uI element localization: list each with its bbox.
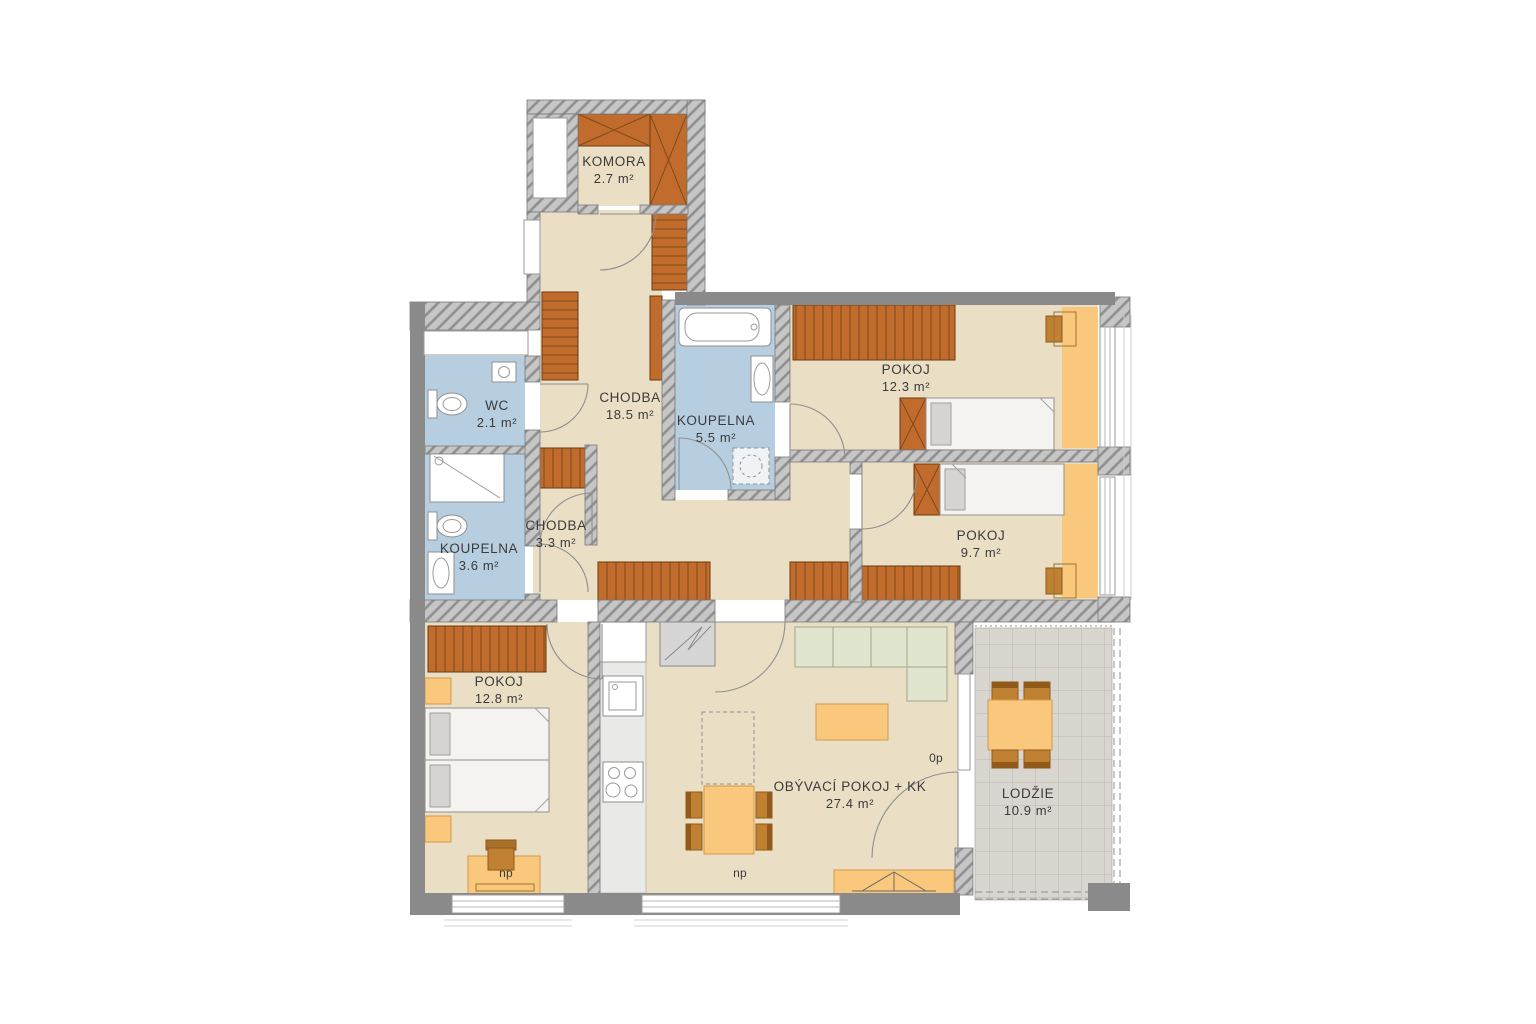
wall: [1098, 597, 1130, 622]
label-pokoj-b: POKOJ: [957, 528, 1006, 543]
label-komora: KOMORA: [582, 154, 646, 169]
wall: [525, 356, 540, 382]
kitchen-counter-run: [600, 622, 646, 893]
wardrobe-shelves: [542, 292, 578, 380]
pillow: [430, 713, 450, 755]
chair-back: [992, 762, 1018, 768]
nightstand-light: [425, 816, 451, 842]
wall: [527, 100, 705, 114]
wall-exterior-left: [410, 302, 425, 915]
wall: [588, 622, 600, 895]
chair-back: [686, 792, 691, 818]
label-koupelna-main: KOUPELNA: [677, 413, 755, 428]
wall: [785, 600, 1115, 622]
label-koupelna-small: KOUPELNA: [440, 541, 518, 556]
wall: [790, 450, 1115, 462]
label-living-area: 27.4 m²: [826, 796, 874, 811]
label-lodzie-area: 10.9 m²: [1004, 803, 1052, 818]
wall: [1098, 447, 1130, 475]
window-pokoj-b: [1100, 477, 1115, 595]
label-koupelna-main-area: 5.5 m²: [696, 430, 737, 445]
washing-machine: [733, 448, 769, 484]
wall-loggia-corner: [1088, 883, 1130, 911]
window-bottom-living: [634, 895, 848, 926]
wardrobe-side: [650, 296, 662, 380]
window-pokoj-a: [1100, 327, 1115, 447]
wall-exterior-top: [675, 292, 1115, 305]
label-pokoj-b-area: 9.7 m²: [961, 545, 1002, 560]
toilet-bowl: [437, 515, 467, 537]
window-bottom-left: [444, 895, 572, 926]
chair-back: [767, 824, 772, 850]
window-wc: [424, 331, 528, 355]
sofa-chaise: [907, 627, 947, 701]
wall: [775, 305, 790, 402]
label-pokoj-c-area: 12.8 m²: [475, 691, 523, 706]
toilet-tank: [428, 512, 437, 540]
coffee-table: [816, 704, 888, 740]
chair-back: [992, 682, 1018, 688]
wall: [850, 462, 862, 474]
pokoj-b-window-zone: [1062, 464, 1098, 598]
floor-plan-canvas: KOMORA 2.7 m² CHODBA 18.5 m² WC 2.1 m² K…: [0, 0, 1536, 1024]
nightstand-light: [425, 678, 451, 704]
wardrobe-hangers: [793, 305, 955, 360]
wall: [410, 302, 540, 330]
floor-plan-drawing: KOMORA 2.7 m² CHODBA 18.5 m² WC 2.1 m² K…: [0, 0, 1536, 1024]
wall: [775, 457, 790, 500]
label-pokoj-a: POKOJ: [882, 362, 931, 377]
label-living: OBÝVACÍ POKOJ + KK: [774, 779, 927, 794]
window-loggia-glass: [958, 674, 970, 770]
wall: [662, 300, 675, 500]
toilet-bowl: [437, 393, 467, 415]
label-pokoj-a-area: 12.3 m²: [882, 379, 930, 394]
chair-back: [1024, 682, 1050, 688]
wall: [410, 600, 557, 622]
wall: [955, 622, 973, 674]
loggia-table: [988, 700, 1052, 750]
chair-back: [686, 824, 691, 850]
dining-table: [704, 786, 754, 854]
chair-back: [767, 792, 772, 818]
wall: [687, 100, 705, 305]
chair-back: [1024, 762, 1050, 768]
wall: [640, 205, 688, 214]
label-wc-area: 2.1 m²: [477, 415, 518, 430]
label-komora-area: 2.7 m²: [594, 171, 635, 186]
wardrobe-hangers: [790, 562, 848, 604]
window-niche: [533, 118, 567, 198]
mark-np-bedroom: np: [499, 866, 513, 880]
pillow: [931, 403, 951, 445]
wall: [425, 446, 538, 454]
wall: [585, 445, 597, 545]
toilet-tank: [428, 390, 437, 418]
mark-np-living: np: [733, 866, 747, 880]
window-niche: [524, 220, 540, 274]
wall: [598, 600, 715, 622]
label-chodba-small: CHODBA: [525, 518, 586, 533]
wall: [850, 529, 862, 602]
label-koupelna-small-area: 3.6 m²: [459, 558, 500, 573]
pillow: [945, 469, 965, 510]
wardrobe-shelves: [652, 212, 687, 290]
wardrobe-hangers: [598, 562, 710, 604]
pokoj-a-window-zone: [1062, 307, 1098, 448]
label-chodba-main: CHODBA: [599, 390, 660, 405]
label-pokoj-c: POKOJ: [475, 674, 524, 689]
fridge: [600, 622, 646, 662]
wall-block: [660, 622, 715, 666]
label-wc: WC: [485, 398, 509, 413]
hand-sink: [492, 362, 516, 382]
wardrobe-hangers: [540, 448, 585, 488]
wardrobe-hangers: [428, 626, 546, 672]
label-chodba-small-area: 3.3 m²: [536, 535, 577, 550]
kitchen-counter: [600, 622, 646, 893]
pillow: [430, 765, 450, 807]
mark-0p: 0p: [929, 751, 943, 765]
label-lodzie: LODŽIE: [1002, 786, 1054, 801]
label-chodba-main-area: 18.5 m²: [606, 407, 654, 422]
wall: [728, 490, 775, 500]
railing-right: [1114, 628, 1120, 888]
wall: [578, 205, 598, 214]
